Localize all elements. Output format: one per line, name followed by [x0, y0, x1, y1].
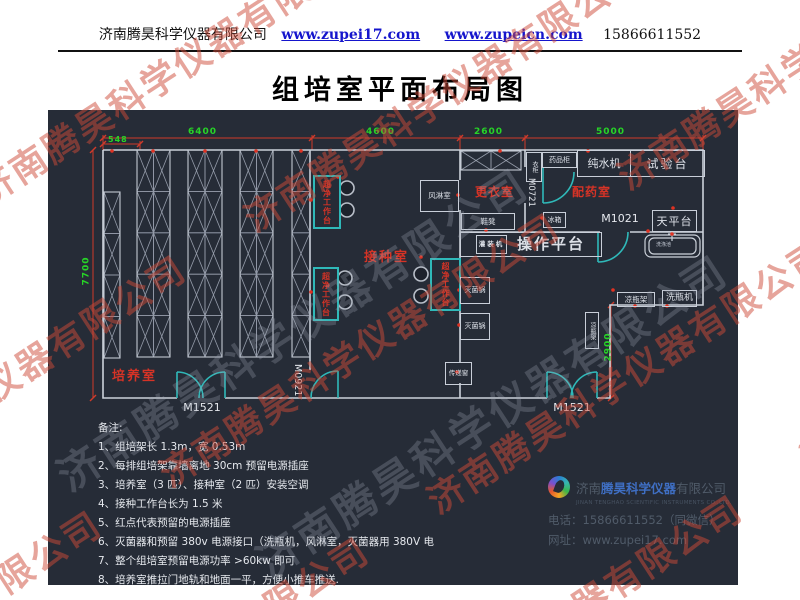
sink-icon — [645, 232, 700, 257]
test-bench-label: 试验台 — [631, 158, 704, 170]
shoe-bench-box: 鞋凳 — [461, 213, 515, 230]
brand-company-name: 济南腾昊科学仪器有限公司 — [576, 478, 726, 497]
door-m1521-left-label: M1521 — [182, 401, 222, 414]
brand-company-en: JINAN TENGHAO SCIENTIFIC INSTRUMENTS CO.… — [576, 500, 738, 506]
prep-top-bench: 纯水机 试验台 — [577, 150, 705, 177]
note-line: 2、每排组培架靠墙离地 30cm 预留电源插座 — [98, 458, 434, 473]
transfer-window-box: 传递窗 — [445, 362, 472, 385]
wardrobe-box: 衣柜 — [526, 152, 542, 182]
dim-4600: 4600 — [366, 127, 395, 137]
brand-phone: 电话：15866611552（同微信） — [548, 512, 738, 528]
note-line: 7、整个组培室预留电源功率 >60kw 即可 — [98, 553, 434, 568]
dim-2900: 2900 — [604, 332, 614, 361]
note-line: 5、红点代表预留的电源插座 — [98, 515, 434, 530]
dim-548: 548 — [108, 135, 128, 144]
dim-2600: 2600 — [474, 127, 503, 137]
bottle-rack-v-box: 凉瓶架 — [585, 312, 599, 349]
clean-bench-3: 超净工作台 — [430, 258, 461, 311]
clean-bench-1: 超净工作台 — [313, 175, 341, 229]
brand-web: 网址：www.zupei17.com — [548, 532, 738, 548]
air-shower-box: 风淋室 — [420, 180, 459, 212]
bottle-washer-box: 洗瓶机 — [662, 290, 697, 307]
header-divider — [58, 50, 742, 52]
note-line: 1、组培架长 1.3m，宽 0.53m — [98, 439, 434, 454]
sink-label: 洗涤池 — [656, 243, 671, 248]
filling-machine-box: 灌装机 — [476, 235, 507, 254]
header-link-1[interactable]: www.zupei17.com — [281, 27, 420, 43]
door-m0921-label: M0921 — [292, 364, 303, 396]
stool-icons — [338, 181, 428, 309]
dim-5000: 5000 — [596, 127, 625, 137]
bottle-rack-h-box: 凉瓶架 — [617, 292, 655, 307]
header-link-2[interactable]: www.zupeicn.com — [445, 27, 583, 43]
balance-table-box: 天平台 — [652, 210, 697, 232]
room-inoculation-label: 接种室 — [364, 251, 409, 265]
door-m0721-label: M0721 — [526, 178, 536, 207]
header-company: 济南腾昊科学仪器有限公司 — [99, 27, 267, 43]
room-preparation-label: 配药室 — [572, 186, 611, 199]
header: 济南腾昊科学仪器有限公司 www.zupei17.com www.zupeicn… — [0, 24, 800, 44]
note-line: 6、灭菌器和预留 380v 电源接口（洗瓶机，风淋室，灭菌器用 380V 电 — [98, 534, 434, 549]
page: 济南腾昊科学仪器有限公司 www.zupei17.com www.zupeicn… — [0, 0, 800, 600]
note-line: 3、培养室（3 匹）、接种室（2 匹）安装空调 — [98, 477, 434, 492]
room-changing-label: 更衣室 — [475, 186, 514, 199]
note-line: 8、培养室推拉门地轨和地面一平，方便小推车推送. — [98, 572, 434, 585]
company-logo-icon — [548, 476, 570, 498]
notes-title: 备注: — [98, 420, 434, 435]
floor-plan-panel: 6400 4600 2600 5000 548 7700 2900 培养室 接种… — [48, 110, 738, 585]
fridge-box: 冰箱 — [543, 212, 566, 228]
clean-bench-2: 超净工作台 — [313, 267, 339, 321]
water-purifier-label: 纯水机 — [578, 151, 631, 176]
sterilizer-box-2: 灭菌锅 — [460, 313, 490, 340]
dim-7700: 7700 — [82, 256, 92, 285]
brand-block: 济南腾昊科学仪器有限公司 JINAN TENGHAO SCIENTIFIC IN… — [548, 476, 738, 548]
note-line: 4、接种工作台长为 1.5 米 — [98, 496, 434, 511]
door-m1021-label: M1021 — [600, 212, 640, 225]
sterilizer-box-1: 灭菌锅 — [460, 277, 490, 304]
medicine-cabinet-box: 药品柜 — [542, 152, 577, 168]
dim-6400: 6400 — [188, 127, 217, 137]
page-title: 组培室平面布局图 — [0, 68, 800, 107]
operation-platform-box: 灌装机 操作平台 — [460, 232, 602, 257]
room-culture-label: 培养室 — [112, 370, 157, 384]
notes: 备注: 1、组培架长 1.3m，宽 0.53m 2、每排组培架靠墙离地 30cm… — [98, 420, 434, 585]
header-phone: 15866611552 — [603, 27, 701, 43]
door-m1521-right-label: M1521 — [552, 401, 592, 414]
